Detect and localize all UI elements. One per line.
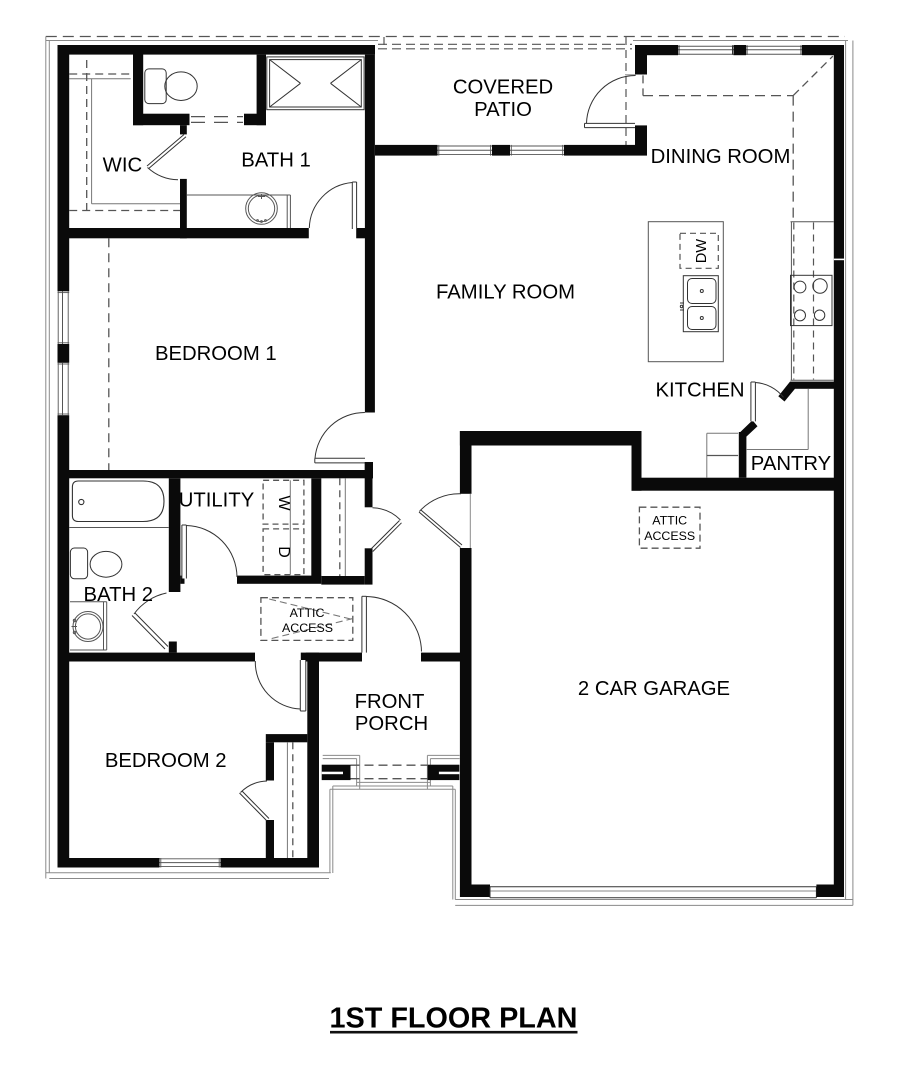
svg-text:COVERED: COVERED (453, 76, 553, 98)
svg-text:UTILITY: UTILITY (179, 490, 255, 512)
svg-text:PORCH: PORCH (355, 713, 428, 735)
svg-text:W: W (275, 495, 292, 511)
svg-text:ATTIC: ATTIC (290, 606, 325, 620)
svg-text:1ST FLOOR PLAN: 1ST FLOOR PLAN (330, 1002, 578, 1034)
svg-text:BEDROOM 2: BEDROOM 2 (105, 750, 227, 772)
svg-text:FAMILY ROOM: FAMILY ROOM (436, 281, 575, 303)
svg-text:DINING ROOM: DINING ROOM (651, 146, 791, 168)
svg-text:WIC: WIC (103, 155, 142, 177)
svg-text:FRONT: FRONT (355, 691, 425, 713)
svg-text:ATTIC: ATTIC (652, 513, 687, 527)
svg-text:KITCHEN: KITCHEN (655, 380, 744, 402)
svg-text:2 CAR GARAGE: 2 CAR GARAGE (578, 678, 730, 700)
svg-text:PANTRY: PANTRY (751, 453, 832, 475)
svg-text:DW: DW (694, 239, 710, 263)
svg-text:ACCESS: ACCESS (644, 529, 695, 543)
svg-text:BATH 2: BATH 2 (84, 584, 154, 606)
svg-text:ACCESS: ACCESS (282, 621, 333, 635)
svg-text:BEDROOM 1: BEDROOM 1 (155, 343, 277, 365)
svg-text:D: D (275, 546, 292, 558)
svg-text:PATIO: PATIO (474, 99, 532, 121)
svg-text:BATH 1: BATH 1 (241, 150, 311, 172)
